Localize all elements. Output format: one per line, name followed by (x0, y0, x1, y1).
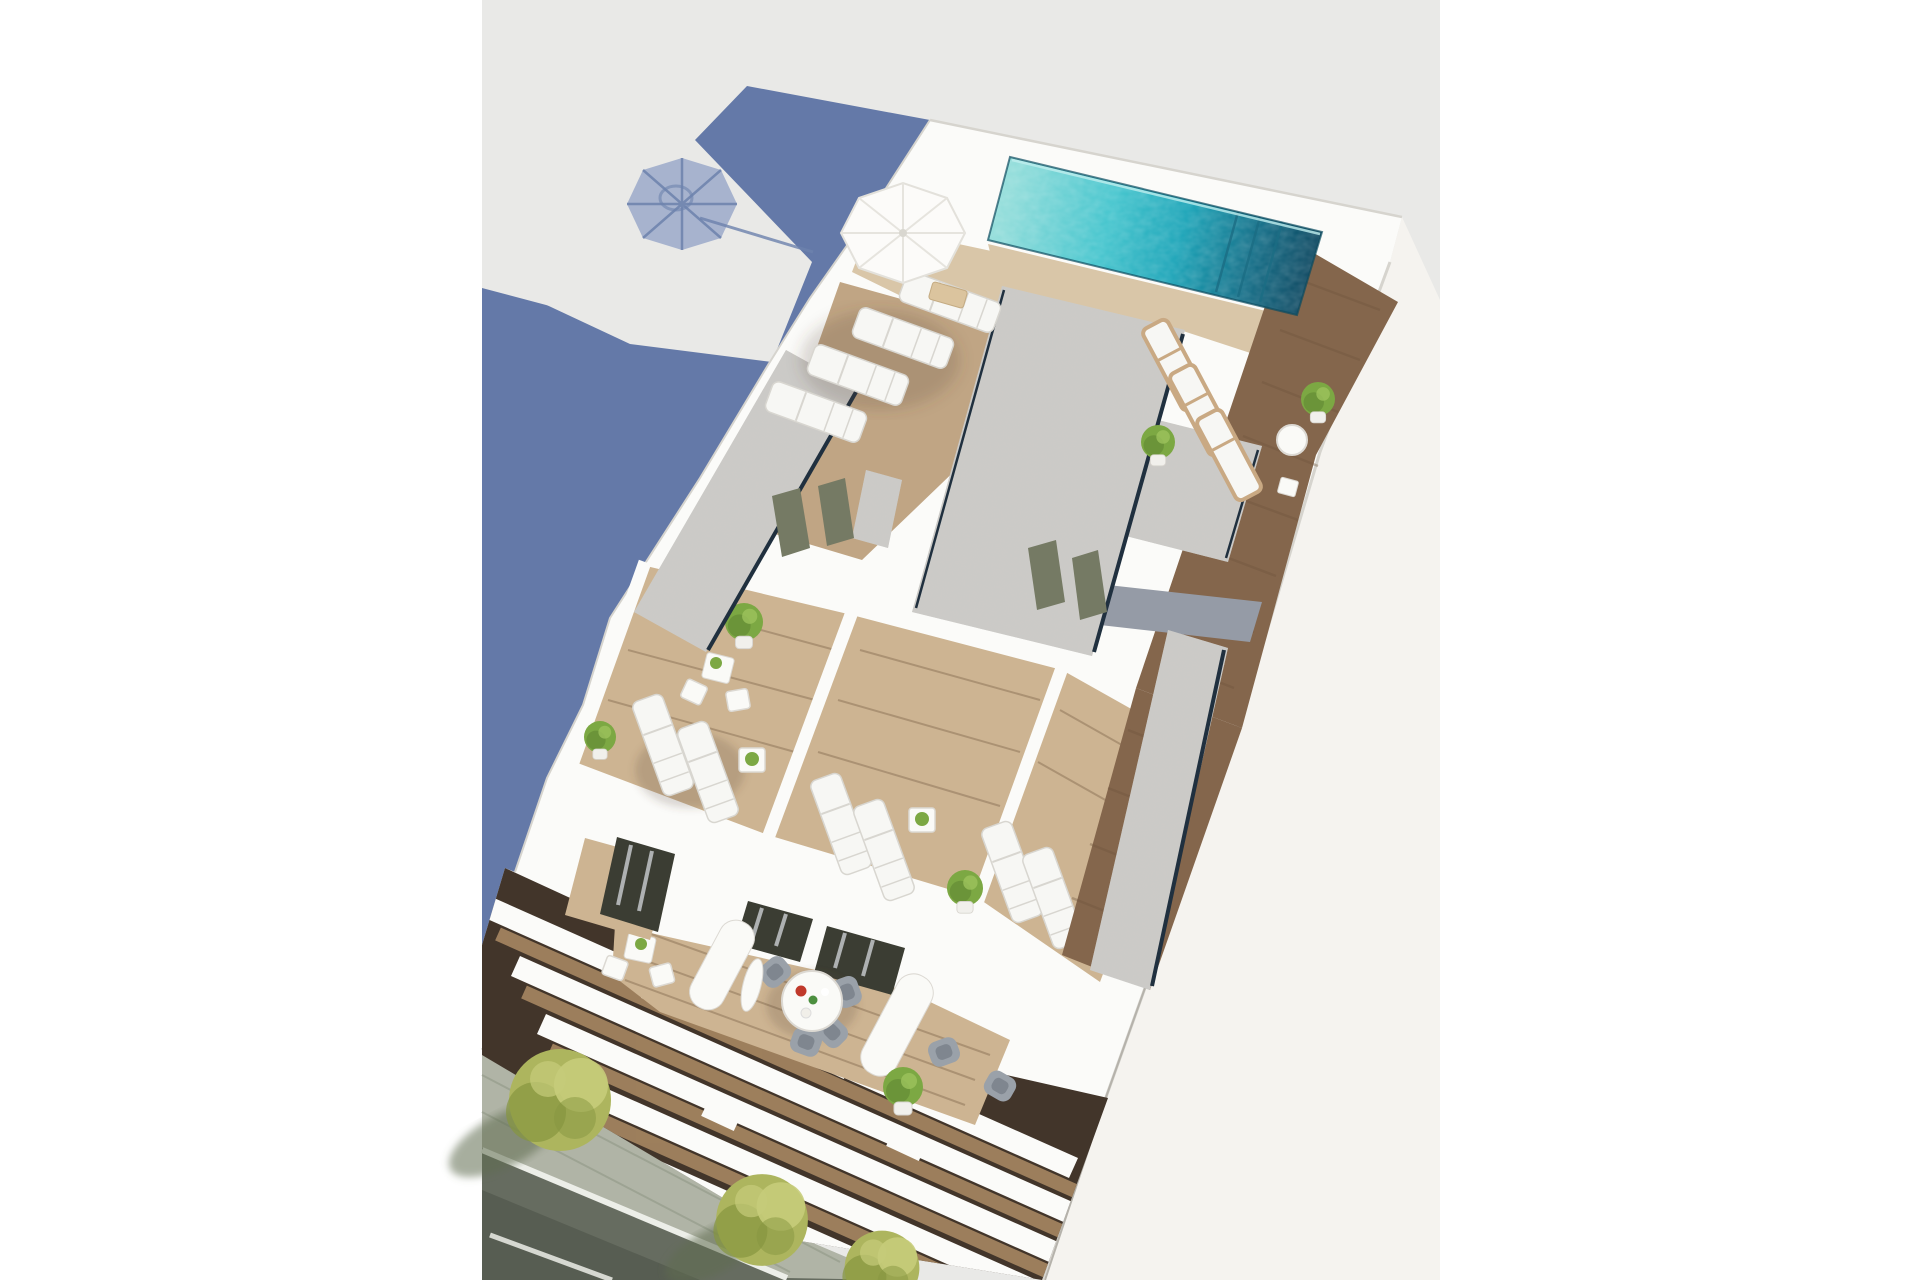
red-plate (796, 986, 807, 997)
green-plate (809, 996, 818, 1005)
white-parasol (841, 183, 965, 283)
table-plant (710, 657, 722, 669)
parasol-shadow-ribs (627, 158, 737, 250)
pedestal-table (1277, 425, 1307, 455)
table-plant (635, 938, 647, 950)
side-table (739, 748, 765, 772)
architectural-render (0, 0, 1920, 1280)
white-plate (821, 988, 829, 996)
parasol-hub (899, 229, 907, 237)
white-chair (725, 688, 750, 712)
white-plate (801, 1008, 811, 1018)
render-page (0, 0, 1920, 1280)
side-table (909, 808, 935, 832)
